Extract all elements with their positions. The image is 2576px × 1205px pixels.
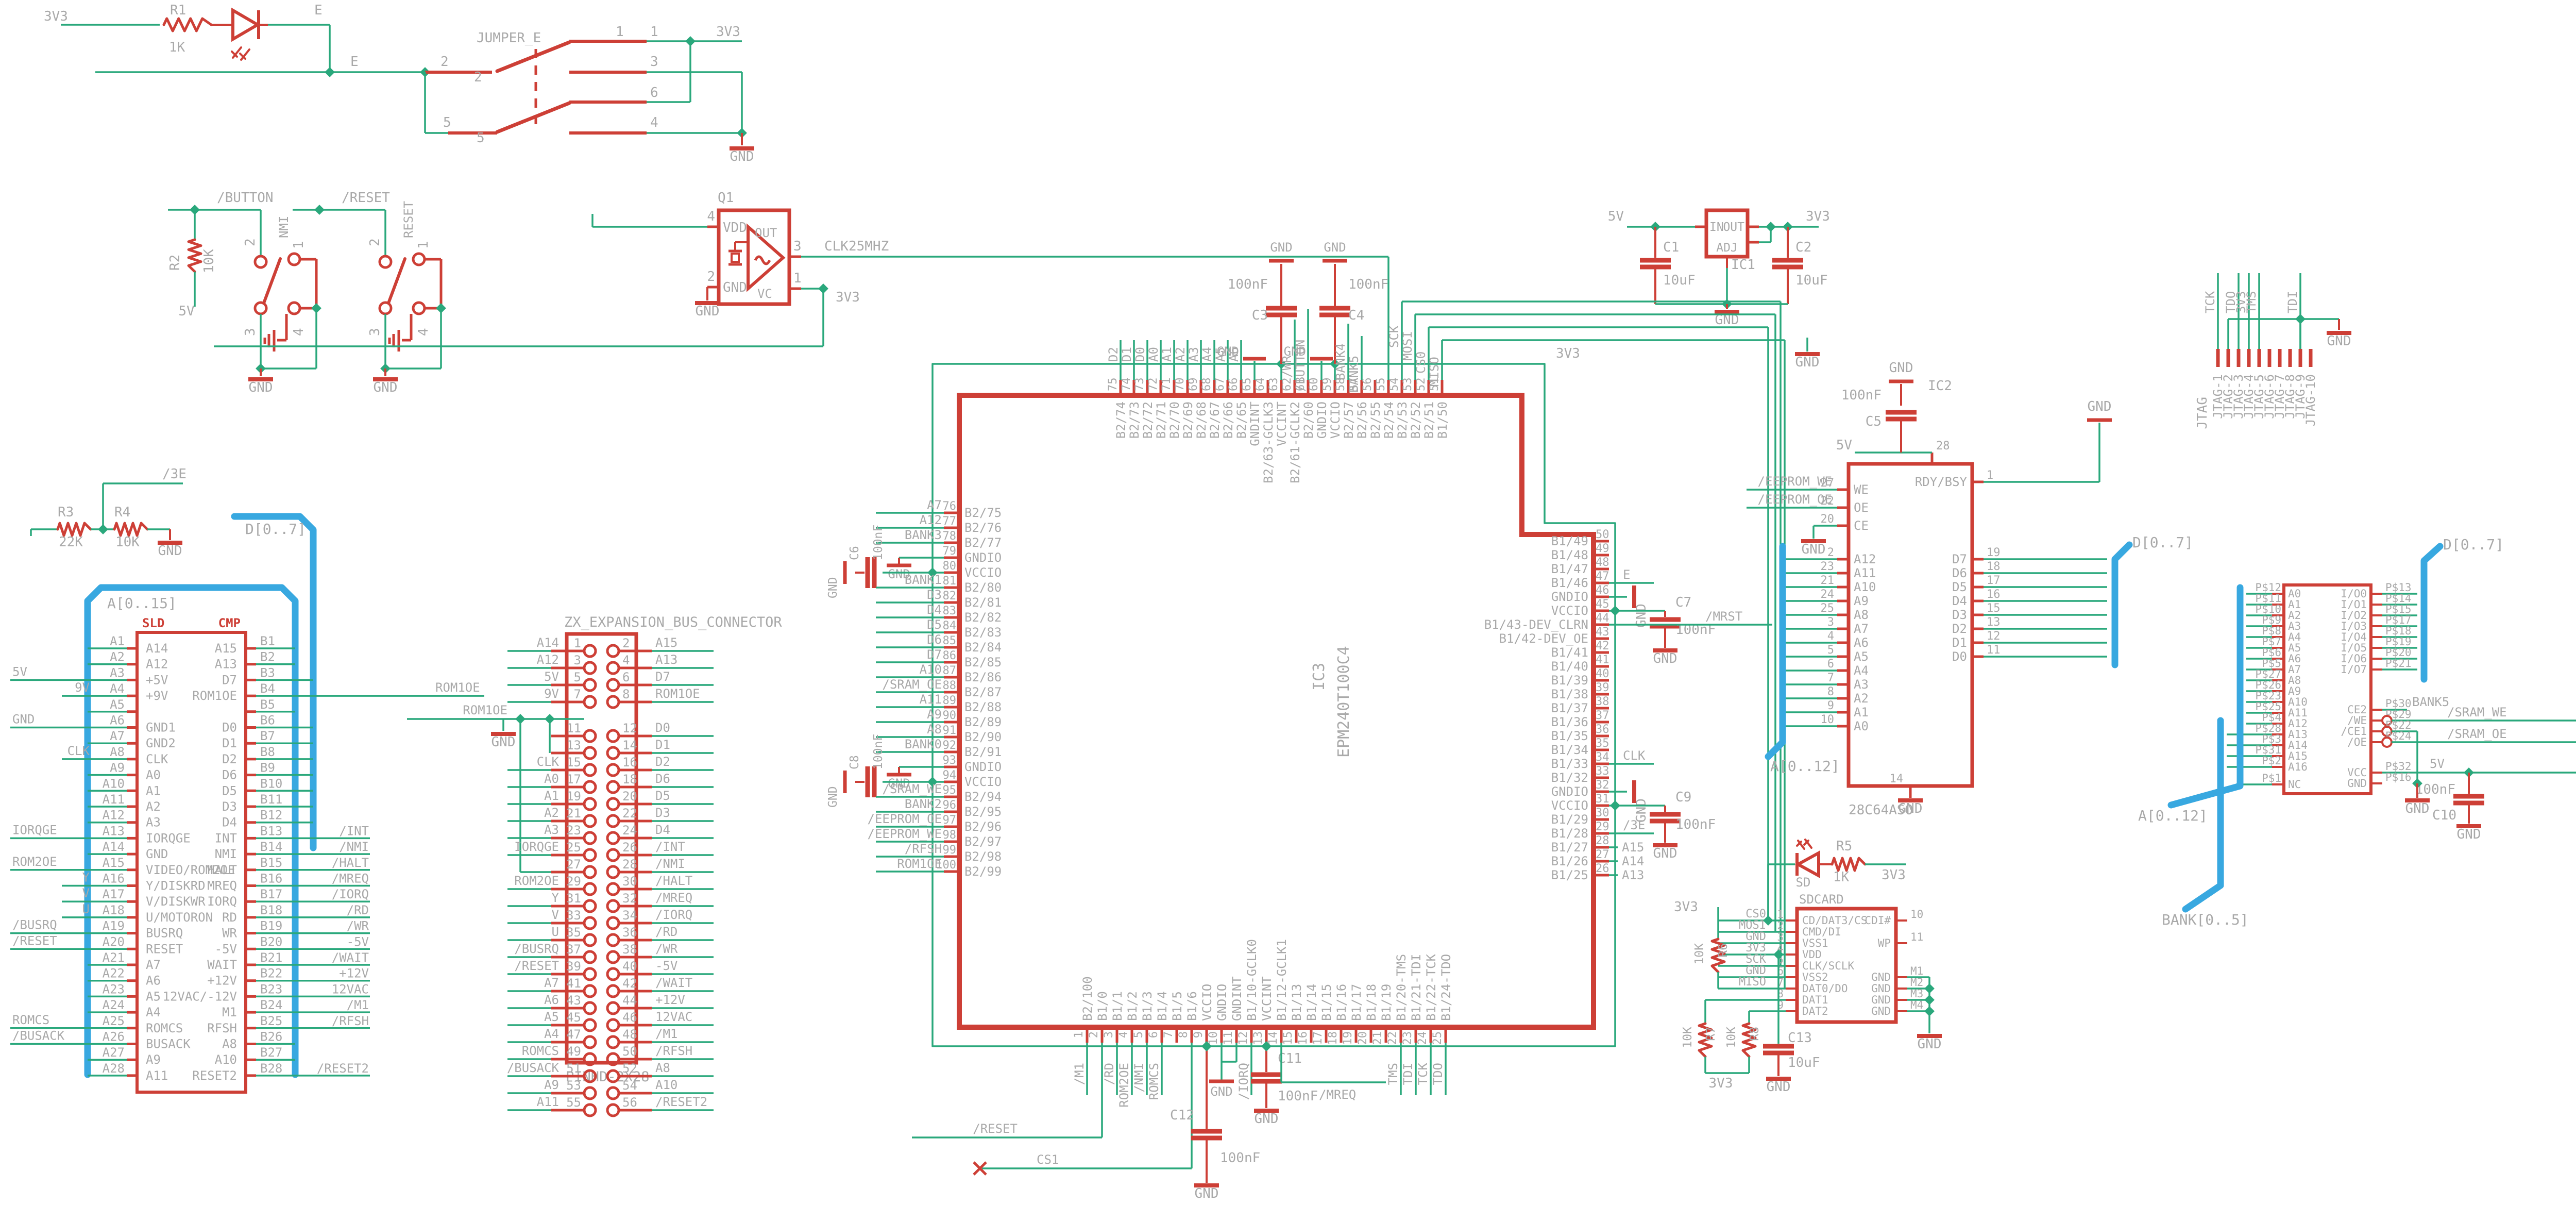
label-23: 23 [1401,1031,1414,1045]
switch-contact[interactable] [289,303,300,314]
label-10k: 10K [201,249,217,273]
header-pin[interactable] [584,917,596,929]
label-4: 4 [291,328,307,336]
header-pin[interactable] [607,832,619,844]
label-3: 3 [1827,616,1834,629]
label-zx-expansion-bus-connector: ZX_EXPANSION_BUS_CONNECTOR [564,614,782,630]
label-34: 34 [622,908,637,923]
switch-contact[interactable] [413,254,425,265]
label-gndio: GNDIO [1215,984,1229,1021]
label-b7: B7 [260,729,275,743]
label-d4: D4 [222,815,237,830]
label-a9: A9 [146,1052,161,1067]
label-a2: A2 [544,806,559,820]
label-p-1: P$1 [2262,772,2281,784]
label-d4: D4 [655,823,670,837]
header-pin[interactable] [607,900,619,912]
label-4: 4 [416,328,431,336]
label-a11: A11 [103,792,125,807]
label-ic2: IC2 [1928,378,1952,394]
label-20: 20 [1357,1031,1369,1045]
gnd-label: GND [1795,355,1820,370]
label-11: 11 [1987,644,2001,657]
header-pin[interactable] [607,815,619,827]
label-ic3: IC3 [1310,663,1328,691]
label-bank4: BANK4 [1333,343,1348,380]
header-pin[interactable] [607,696,619,708]
gnd-label: GND [2457,827,2481,842]
label-a11: A11 [920,692,942,707]
label-m3: M3 [1910,988,1923,1000]
label-b1-27: B1/27 [1551,840,1588,855]
label-33: 33 [566,908,581,923]
header-pin[interactable] [584,696,596,708]
label-a0: A0 [1146,347,1161,362]
label-r1: R1 [170,3,186,18]
label-a3: A3 [1854,677,1869,692]
header-pin[interactable] [607,747,619,759]
header-pin[interactable] [607,883,619,895]
label-3v3: 3V3 [836,290,860,305]
label-49: 49 [566,1044,581,1059]
label-b2-80: B2/80 [964,580,1002,595]
header-pin[interactable] [584,730,596,742]
label-rom2oe: ROM2OE [12,855,57,869]
label-7: 7 [1162,1031,1175,1038]
label-a8: A8 [927,722,942,737]
label-a11: A11 [537,1095,559,1109]
label-10k: 10K [115,534,140,550]
label-a28: A28 [103,1061,125,1076]
label-1: 1 [416,241,431,249]
label-10: 10 [1910,908,1923,921]
label--iorq: /IORQ [332,887,369,901]
label-rom1oe: ROM1OE [897,857,942,871]
label-5v: 5V [1608,209,1624,224]
label-5v: 5V [178,304,194,319]
label-r3: R3 [58,505,74,520]
label-46: 46 [1596,584,1609,597]
label-a10: A10 [655,1078,677,1092]
header-pin[interactable] [584,679,596,691]
header-pin[interactable] [584,815,596,827]
label-a6: A6 [110,713,125,728]
label-2: 2 [1088,1031,1100,1038]
label-gndint: GNDINT [1248,401,1262,446]
label-b2-67: B2/67 [1208,401,1222,439]
header-pin[interactable] [607,645,619,657]
label-mosi: MOSI [1400,331,1415,361]
label-a4: A4 [146,1005,161,1019]
label-a14: A14 [537,635,559,650]
label-a18: A18 [103,903,125,917]
label--3e: /3E [162,466,187,482]
label-a13: A13 [655,652,677,667]
label-b3: B3 [260,665,275,680]
header-pin[interactable] [584,832,596,844]
label-96: 96 [943,799,957,812]
header-pin[interactable] [607,1087,619,1099]
gnd-label: GND [2327,333,2351,349]
label-c1: C1 [1663,240,1679,255]
label-6: 6 [1827,658,1834,671]
led-triangle[interactable] [1798,853,1819,876]
label-y: Y [82,871,90,885]
label-e: E [350,54,359,70]
label-i-o7: I/O7 [2341,663,2367,676]
gnd-label: GND [249,380,273,395]
label-29: 29 [566,874,581,889]
label-a10: A10 [215,1052,237,1067]
label-75: 75 [1107,378,1120,392]
label-b1-33: B1/33 [1551,757,1588,771]
label-b2-87: B2/87 [964,685,1002,699]
label-p-16: P$16 [2385,771,2412,783]
label-y-diskrd: Y/DISKRD [146,879,206,893]
label-b2-61-gclk2: B2/61-GCLK2 [1288,401,1302,483]
header-pin[interactable] [607,1036,619,1048]
label-4: 4 [1827,630,1834,643]
label-b24: B24 [260,998,282,1012]
label-a9: A9 [544,1078,559,1092]
label-36: 36 [622,925,637,940]
label-a3: A3 [146,815,161,830]
led-triangle[interactable] [233,10,258,39]
label-28: 28 [622,857,637,872]
switch-contact[interactable] [289,254,300,265]
header-pin[interactable] [584,1087,596,1099]
gnd-label: GND [1195,1186,1219,1201]
label-12: 12 [1987,630,2001,643]
label-b1-48: B1/48 [1551,548,1588,562]
label-cmp: CMP [218,616,241,630]
label-47: 47 [1596,570,1609,583]
switch-contact[interactable] [413,303,425,314]
resistor [114,523,147,535]
label-adj: ADJ [1716,241,1738,255]
label-out: OUT [1723,221,1744,234]
label-4: 4 [707,209,715,224]
header-pin[interactable] [584,781,596,793]
label-r7: R7 [1704,1027,1718,1041]
label-b11: B11 [260,792,282,807]
label--int: /INT [655,840,685,854]
label-37: 37 [1596,709,1609,722]
label-39: 39 [1596,681,1609,694]
label-romcs: ROMCS [522,1044,559,1058]
label-dat1: DAT1 [1802,994,1828,1006]
label-d6: D6 [655,772,670,786]
header-pin[interactable] [584,662,596,674]
header-pin[interactable] [584,934,596,946]
label-b1-12-gclk1: B1/12-GCLK1 [1275,939,1289,1021]
label-83: 83 [943,605,957,617]
label-3: 3 [367,328,383,336]
label-48: 48 [1596,556,1609,569]
label-a1: A1 [146,783,161,798]
header-pin[interactable] [584,849,596,861]
label-77: 77 [943,515,957,528]
label-11: 11 [1910,931,1923,943]
label-100nf: 100nF [1228,277,1268,292]
label-3v3: 3V3 [44,9,68,24]
label-93: 93 [943,754,957,767]
label-b1-36: B1/36 [1551,715,1588,729]
header-pin[interactable] [584,798,596,810]
header-pin[interactable] [584,1104,596,1116]
header-pin[interactable] [584,1019,596,1031]
label-a9: A9 [1854,594,1869,608]
label-d0: D0 [655,721,670,735]
label-b22: B22 [260,966,282,981]
label-b2-51: B2/51 [1422,401,1436,439]
label-a3: A3 [110,665,125,680]
label-a10: A10 [103,776,125,791]
label--rfsh: /RFSH [332,1014,369,1028]
gnd-label: GND [2405,801,2430,816]
label-a2: A2 [146,799,161,814]
label--wait: /WAIT [655,976,692,990]
label-d0: D0 [1133,347,1147,362]
label-gnd: GND [1871,1005,1891,1017]
label--9v: +9V [146,689,168,703]
label-a16: A16 [103,872,125,886]
cpld-body[interactable] [959,395,1594,1027]
header-pin[interactable] [607,1104,619,1116]
label-b14: B14 [260,840,282,854]
header-pin[interactable] [584,645,596,657]
label-reset: RESET [146,942,183,956]
label-b17: B17 [260,887,282,901]
label-mreq: MREQ [207,879,237,893]
label-70: 70 [1174,378,1187,392]
label-5: 5 [443,115,451,130]
label-vccio: VCCIO [964,775,1002,789]
label-a25: A25 [103,1014,125,1028]
label-39: 39 [566,959,581,974]
label-80: 80 [943,560,957,573]
header-pin[interactable] [607,951,619,963]
label-bank-0-5-: BANK[0..5] [2162,911,2249,928]
label-tck: TCK [2203,291,2217,313]
label--iorq: /IORQ [655,908,692,922]
label-e: E [1623,567,1630,582]
header-pin[interactable] [607,985,619,997]
label-2: 2 [1777,919,1784,932]
label-b1-47: B1/47 [1551,562,1588,576]
label-a7: A7 [927,498,942,512]
sram-a-bus [2171,588,2240,805]
label-3v3: 3V3 [1674,899,1698,915]
label-1: 1 [1073,1031,1086,1038]
label-b2-55: B2/55 [1368,401,1383,439]
label-gnd1: GND1 [146,721,176,735]
label-a13: A13 [215,657,237,672]
label-c13: C13 [1788,1030,1812,1046]
label-7: 7 [1827,672,1834,684]
header-pin[interactable] [607,798,619,810]
label-a8: A8 [1854,608,1869,622]
label-gnd: GND [1871,994,1891,1006]
label-cd-dat3-cs: CD/DAT3/CS [1802,914,1867,927]
label-35: 35 [566,925,581,940]
label-10k: 10K [1725,1027,1738,1048]
header-pin[interactable] [607,781,619,793]
label-gnd: GND [2347,777,2367,790]
inverter-bubble [2382,738,2392,747]
label-vccint: VCCINT [1260,976,1274,1021]
label--oe: /OE [2347,736,2367,748]
header-pin[interactable] [584,866,596,878]
label-b1-18: B1/18 [1364,984,1379,1021]
label-a26: A26 [103,1030,125,1044]
label--5v: +5V [146,673,168,687]
label-1k: 1K [169,40,185,55]
label-c4: C4 [1348,308,1364,323]
label-50: 50 [622,1044,637,1059]
label-vccint: VCCINT [1275,401,1289,446]
label-gnd: GND [826,786,840,808]
label-b2-88: B2/88 [964,700,1002,714]
label-5: 5 [1827,644,1834,657]
label-b15: B15 [260,856,282,870]
label-19: 19 [1987,546,2001,559]
header-pin[interactable] [584,951,596,963]
label-a12: A12 [103,808,125,823]
label-busrq: BUSRQ [146,926,183,941]
label-gnd: GND [1871,971,1891,983]
header-pin[interactable] [607,679,619,691]
header-pin[interactable] [584,883,596,895]
label-b1-29: B1/29 [1551,812,1588,827]
label-p-21: P$21 [2385,657,2412,670]
label-27: 27 [1596,848,1609,861]
label-gnd: GND [1871,982,1891,995]
label-romcs: ROMCS [146,1021,183,1035]
label--sram-oe: /SRAM_OE [882,677,942,692]
switch-contact[interactable] [255,256,266,267]
header-pin[interactable] [584,1002,596,1014]
header-pin[interactable] [607,1002,619,1014]
label-2: 2 [440,54,449,70]
label-a4: A4 [110,681,125,696]
label-a3: A3 [544,823,559,837]
label-vccio: VCCIO [1551,798,1588,813]
label-oe: OE [1854,500,1869,515]
header-pin[interactable] [607,968,619,980]
label-26: 26 [622,840,637,855]
osc-sine [755,257,770,264]
header-pin[interactable] [584,764,596,776]
label-b1-34: B1/34 [1551,743,1588,757]
label--busack: /BUSACK [507,1061,560,1075]
label-11: 11 [566,721,581,735]
label-a17: A17 [103,887,125,901]
label-b2-65: B2/65 [1234,401,1249,439]
label-78: 78 [943,530,957,543]
junction [325,67,335,77]
label-3v3: 3V3 [1709,1076,1733,1091]
header-pin[interactable] [607,730,619,742]
label-18: 18 [622,772,637,786]
label-vccio: VCCIO [1551,604,1588,618]
header-pin[interactable] [607,917,619,929]
label-cs1: CS1 [1037,1152,1059,1167]
label-56: 56 [1361,378,1374,392]
label-2: 2 [474,70,482,85]
header-pin[interactable] [607,866,619,878]
label-r5: R5 [1836,839,1852,854]
label-3: 3 [243,328,258,336]
label-e: E [314,3,323,18]
label-60: 60 [1308,378,1320,392]
label-b1-24-tdo: B1/24-TDO [1439,954,1453,1021]
label-b2-57: B2/57 [1342,401,1356,439]
label-b2-56: B2/56 [1355,401,1369,439]
label-b2-77: B2/77 [964,535,1002,550]
header-pin[interactable] [607,1019,619,1031]
label--halt: /HALT [655,874,692,888]
label-2: 2 [1827,546,1834,559]
resistor [58,523,91,535]
label--12v: +12V [339,966,369,981]
header-pin[interactable] [607,764,619,776]
label--nmi: /NMI [655,857,685,871]
label-a12: A12 [146,657,168,672]
label-10uf: 10uF [1795,273,1828,288]
label--reset: /RESET [973,1122,1018,1136]
gnd-label: GND [696,304,720,319]
label-b2-63-gclk3: B2/63-GCLK3 [1261,401,1276,483]
label-d4: D4 [927,602,942,617]
label-30: 30 [622,874,637,889]
label-13: 13 [566,738,581,752]
header-pin[interactable] [584,968,596,980]
label-b1-17: B1/17 [1349,984,1364,1021]
header-pin[interactable] [584,1036,596,1048]
label-22: 22 [622,806,637,821]
header-pin[interactable] [607,849,619,861]
label-clk: CLK [537,755,560,769]
label-10uf: 10uF [1788,1055,1820,1070]
header-pin[interactable] [584,747,596,759]
label--reset: /RESET [342,190,390,206]
label-b2-97: B2/97 [964,834,1002,849]
label-b21: B21 [260,950,282,965]
label-a15: A15 [215,641,237,656]
label-a1: A1 [110,634,125,648]
switch-contact[interactable] [380,256,391,267]
label-tck: TCK [1416,1062,1430,1085]
label-5v: 5V [544,670,559,684]
label-d1: D1 [655,738,670,752]
header-pin[interactable] [584,985,596,997]
header-pin[interactable] [607,934,619,946]
header-pin[interactable] [607,662,619,674]
label-73: 73 [1133,378,1146,392]
jumper-arm [497,103,569,132]
label-b1-21-tdi: B1/21-TDI [1409,954,1423,1021]
label--reset2: /RESET2 [317,1061,369,1076]
label-1: 1 [1777,908,1784,921]
label-a16: A16 [2288,761,2308,773]
label-b1-50: B1/50 [1435,401,1450,439]
label-54: 54 [622,1078,637,1093]
label-a0: A0 [544,772,559,786]
label-nmi: NMI [215,847,237,861]
label-rom2oe: ROM2OE [1117,1063,1131,1108]
header-pin[interactable] [584,900,596,912]
